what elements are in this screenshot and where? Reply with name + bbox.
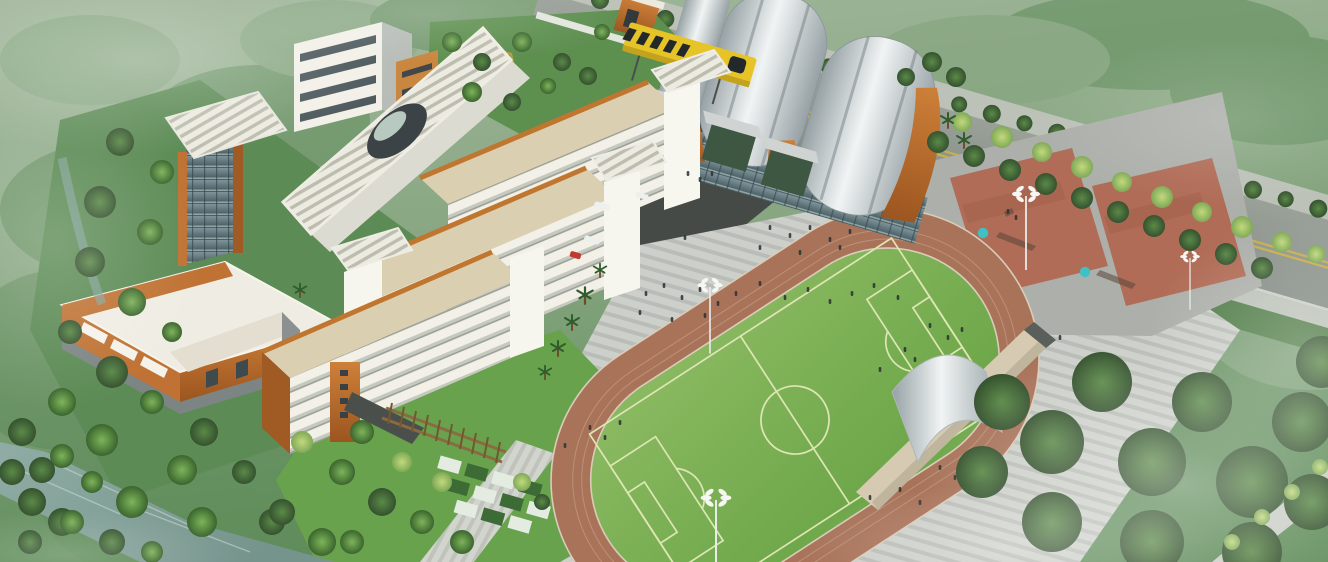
plaza-tree-top: [978, 228, 988, 238]
slab-end-tower: [664, 80, 700, 210]
tower-orange-column: [233, 139, 243, 253]
campus-rendering: Aerial architectural rendering of a scho…: [0, 0, 1328, 562]
campus-rendering-canvas: [0, 0, 1328, 562]
plaza-tree-top: [1080, 267, 1090, 277]
slab-end-tower: [510, 246, 544, 358]
slab-end-tower: [604, 170, 640, 300]
